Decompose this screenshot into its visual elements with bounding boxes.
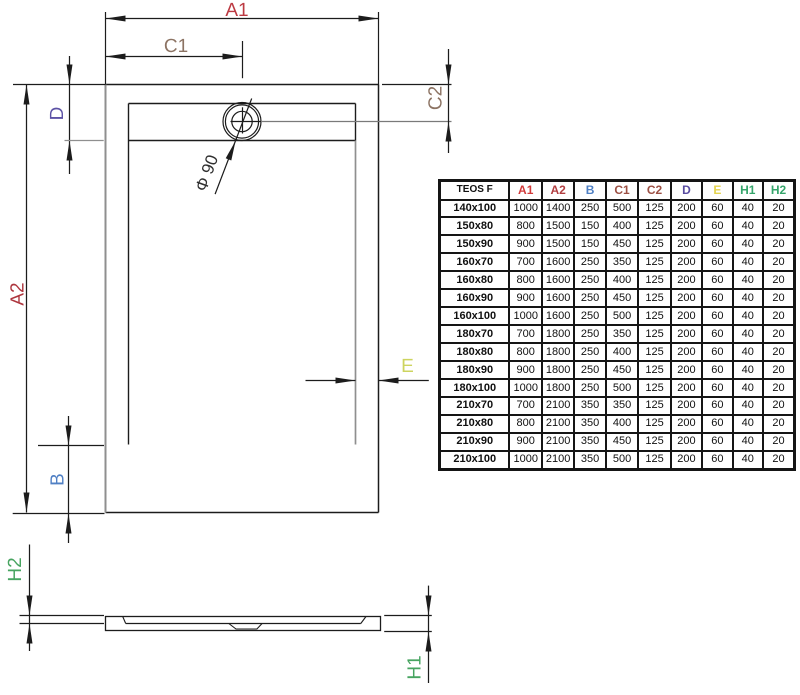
svg-text:E: E <box>401 356 414 377</box>
svg-text:H2: H2 <box>5 557 26 581</box>
svg-text:B: B <box>48 473 69 486</box>
svg-text:A2: A2 <box>7 282 28 305</box>
svg-text:A1: A1 <box>225 0 248 21</box>
svg-text:D: D <box>47 107 68 121</box>
svg-text:H1: H1 <box>405 655 426 679</box>
svg-text:C2: C2 <box>426 86 447 110</box>
svg-text:C1: C1 <box>164 36 188 57</box>
